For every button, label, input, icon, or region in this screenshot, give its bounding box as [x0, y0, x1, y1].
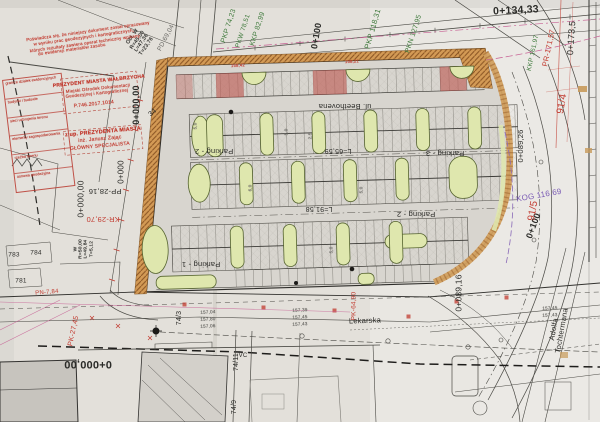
scanned-site-plan: granice działek ewidencyjnychbudynki i b… [0, 0, 600, 422]
parking-area [127, 47, 522, 294]
site-plan-drawing [0, 0, 600, 422]
